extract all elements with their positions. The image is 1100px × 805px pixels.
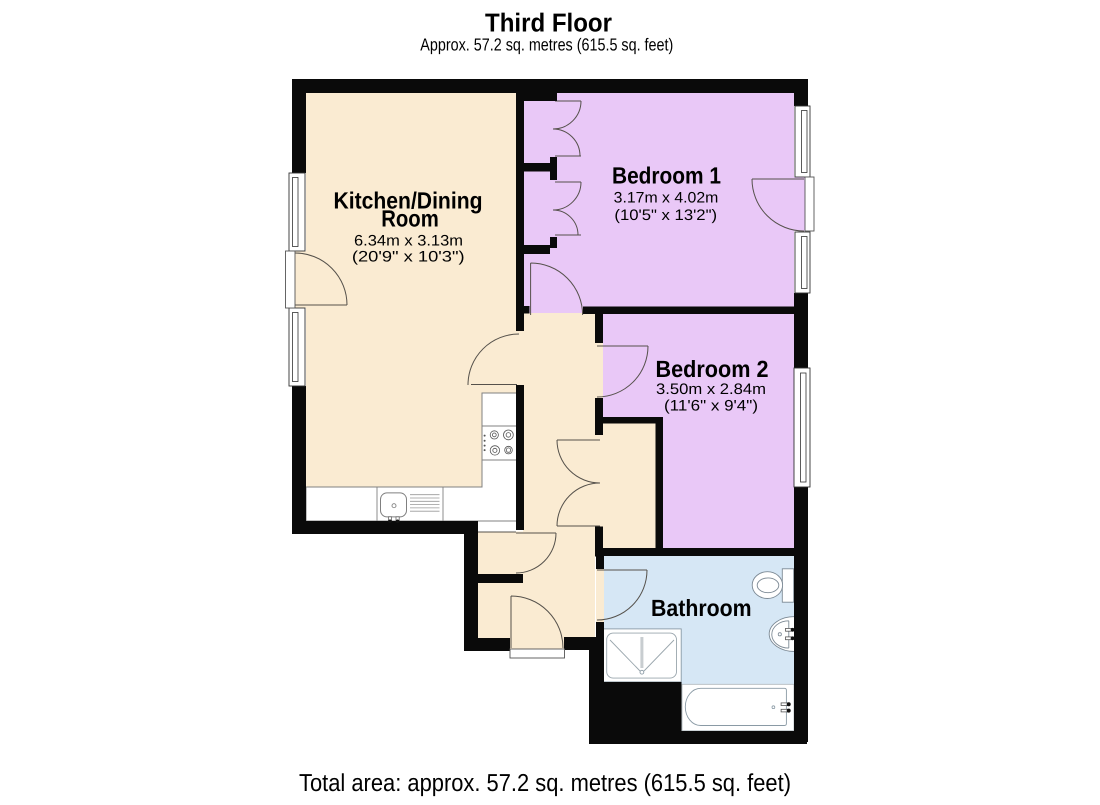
svg-text:(20'9" x 10'3"): (20'9" x 10'3")	[352, 249, 465, 266]
svg-text:Bedroom 2: Bedroom 2	[656, 356, 769, 382]
svg-text:3.50m x 2.84m: 3.50m x 2.84m	[656, 381, 766, 398]
svg-text:Approx. 57.2 sq. metres (615.5: Approx. 57.2 sq. metres (615.5 sq. feet)	[420, 35, 673, 55]
svg-text:Bathroom: Bathroom	[651, 595, 752, 621]
svg-text:Bedroom 1: Bedroom 1	[612, 163, 721, 189]
svg-text:(10'5" x 13'2"): (10'5" x 13'2")	[614, 207, 717, 224]
svg-text:3.17m x 4.02m: 3.17m x 4.02m	[614, 190, 719, 207]
svg-text:Total area: approx. 57.2 sq. m: Total area: approx. 57.2 sq. metres (615…	[299, 770, 791, 797]
svg-text:(11'6" x 9'4"): (11'6" x 9'4")	[664, 398, 758, 415]
svg-text:6.34m x 3.13m: 6.34m x 3.13m	[354, 233, 463, 250]
svg-text:Room: Room	[381, 206, 439, 232]
svg-text:Third Floor: Third Floor	[485, 8, 612, 38]
